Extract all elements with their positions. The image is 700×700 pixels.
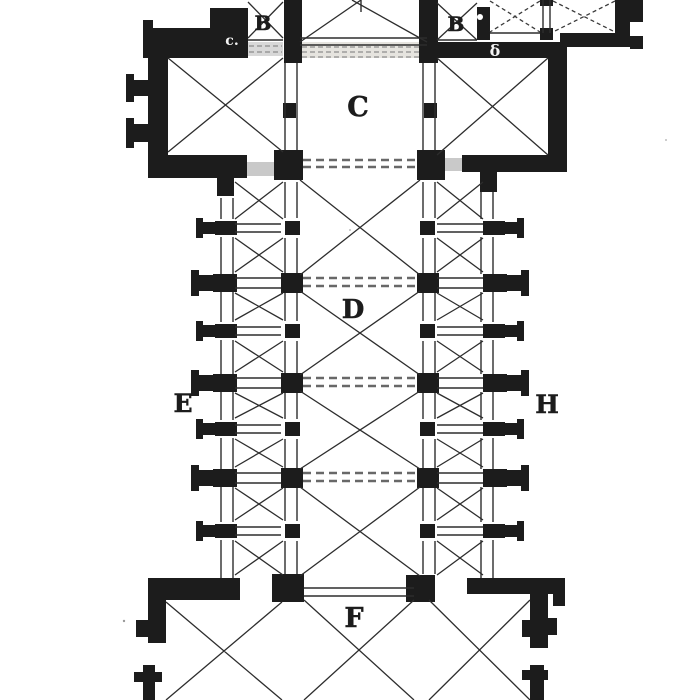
label-nave-d: D: [342, 295, 365, 325]
paper-speckle: [349, 229, 351, 231]
label-choir-c: C: [347, 92, 369, 123]
label-wall-mark-c: c.: [225, 33, 238, 49]
label-westwork-f: F: [344, 603, 363, 634]
chapel-step-band: [248, 42, 283, 56]
wall-opening-dot: [477, 14, 483, 20]
label-wall-mark-delta: δ: [490, 41, 501, 60]
engraving-canvas: B c. B δ C D E H F: [0, 0, 700, 700]
paper-speckle: [665, 139, 667, 141]
label-chapel-b-right: B: [448, 12, 465, 36]
label-aisle-e: E: [173, 389, 192, 418]
label-chapel-b-left: B: [255, 11, 272, 35]
paper-speckle: [123, 620, 125, 622]
label-aisle-h: H: [535, 390, 559, 419]
church-floor-plan-svg: B c. B δ C D E H F: [0, 0, 700, 700]
